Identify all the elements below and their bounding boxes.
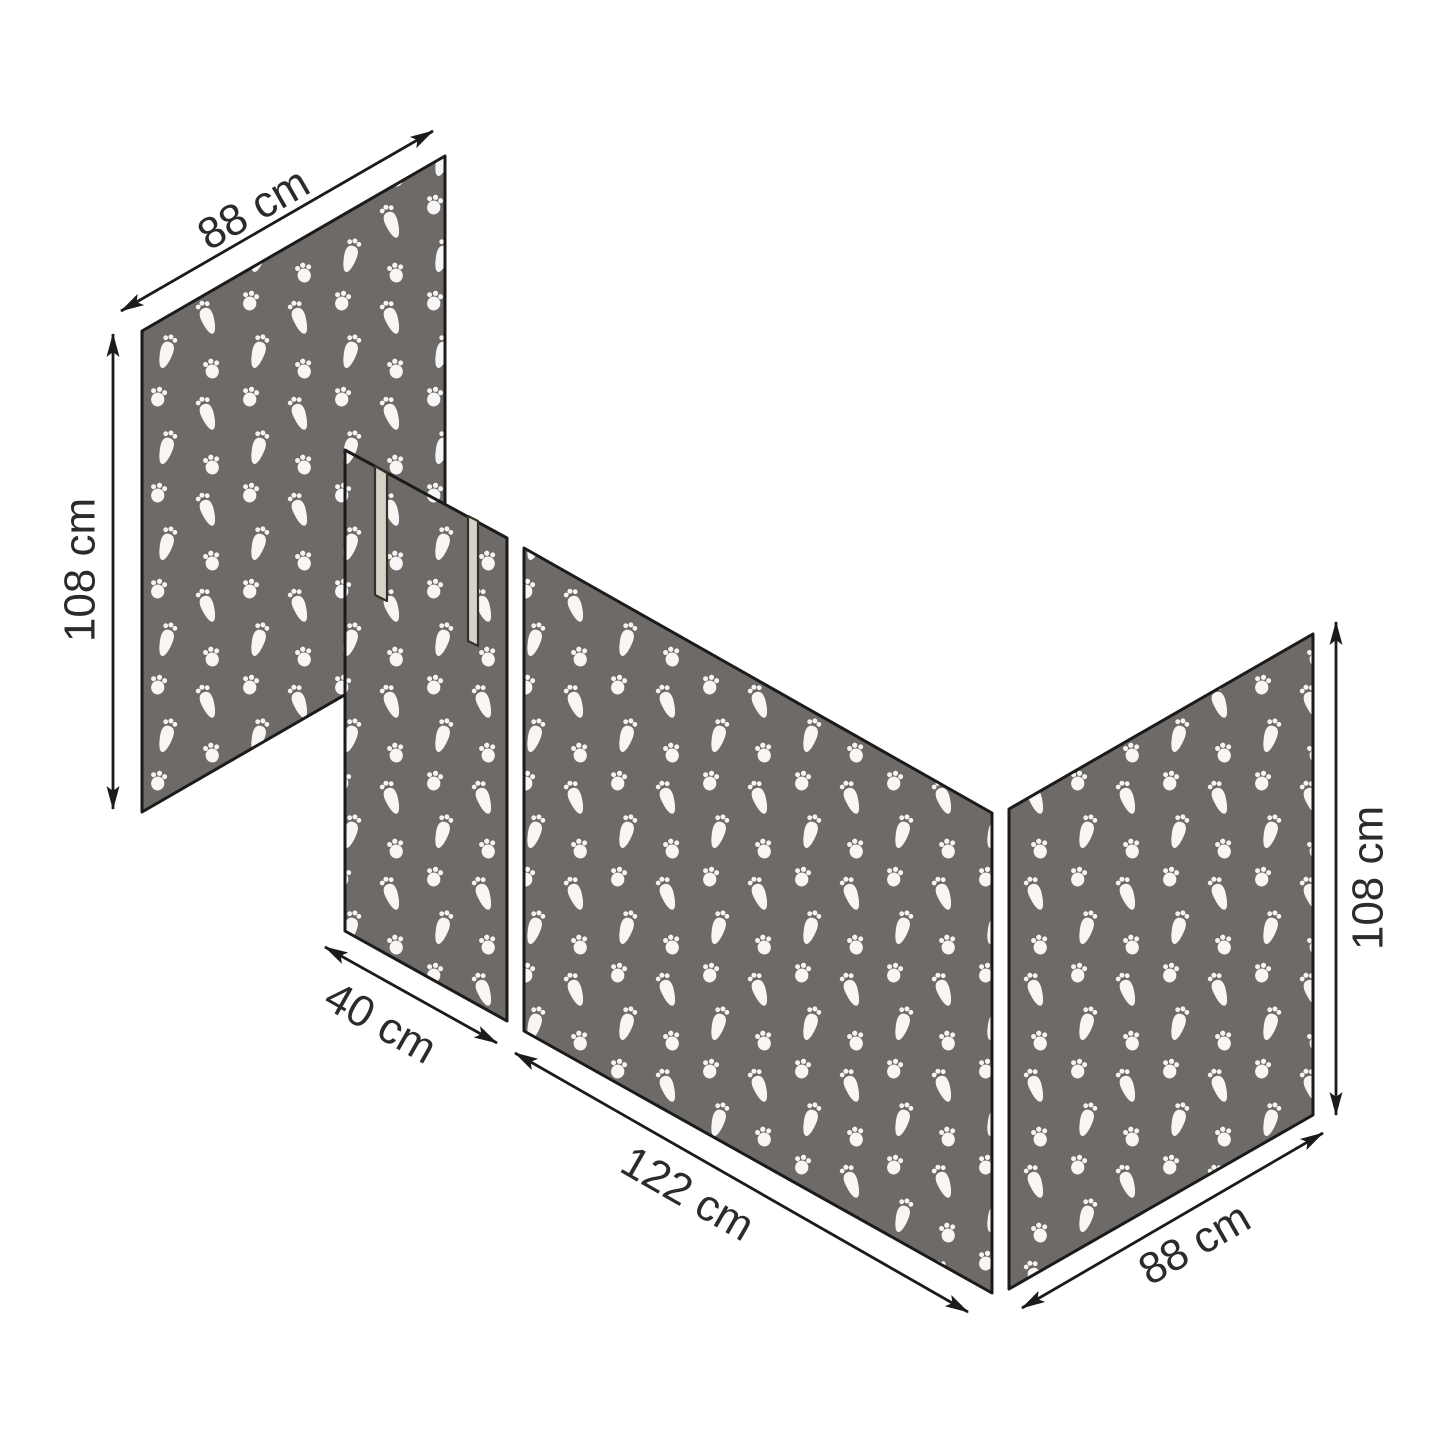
hanging-strap — [375, 466, 387, 601]
hanging-strap — [468, 516, 478, 646]
dimension-label-back-height: 108 cm — [55, 498, 104, 642]
bed-curtain-dimension-diagram: 88 cm 108 cm 40 cm 122 cm 88 cm 108 cm — [0, 0, 1445, 1445]
door-panel — [345, 450, 507, 1021]
dimension-label-foot-height: 108 cm — [1343, 806, 1392, 950]
front-side-panel — [524, 548, 992, 1293]
dimension-label-front-width: 122 cm — [613, 1137, 763, 1251]
foot-end-panel — [1009, 634, 1313, 1289]
diagram-svg: 88 cm 108 cm 40 cm 122 cm 88 cm 108 cm — [0, 0, 1445, 1445]
dimension-label-door-width: 40 cm — [316, 972, 444, 1074]
